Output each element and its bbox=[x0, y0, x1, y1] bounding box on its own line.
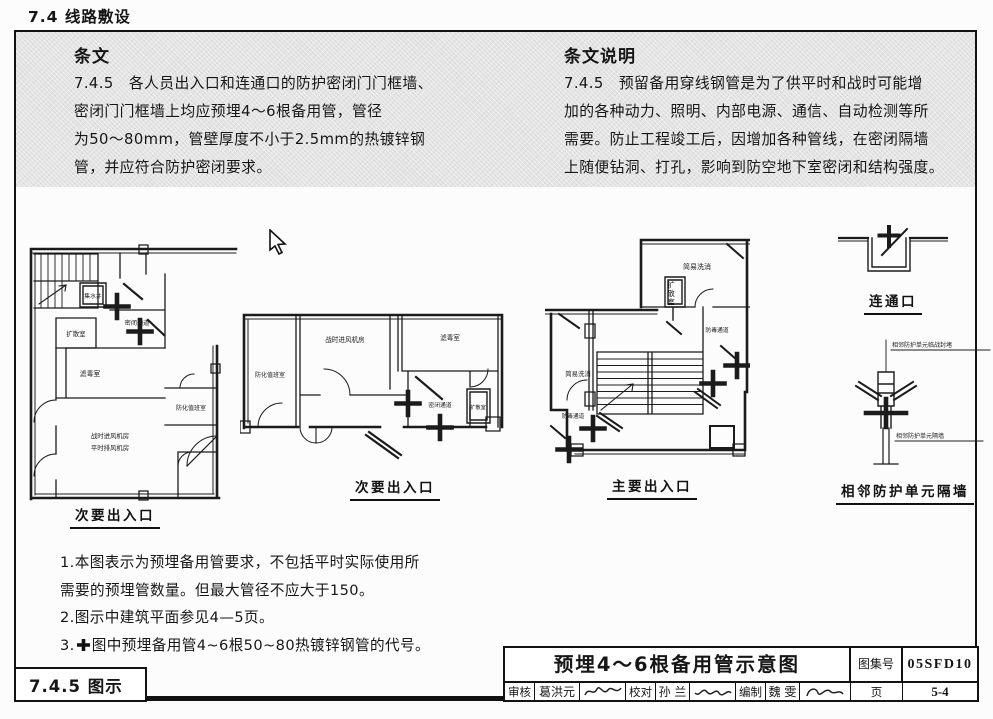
stair-arrow bbox=[601, 384, 633, 410]
reviewer-name: 葛洪元 bbox=[535, 683, 580, 700]
door-leaf bbox=[551, 346, 737, 438]
room-label-filter: 滤毒室 bbox=[440, 333, 460, 342]
explanation-line: 7.4.5 预留备用穿线钢管是为了供平时和战时可能增 bbox=[564, 70, 944, 98]
clause-line: 密闭门门框墙上均应预埋4～6根备用管，管径 bbox=[74, 98, 433, 126]
shaft-box bbox=[710, 426, 734, 448]
leader-line bbox=[886, 340, 990, 441]
compile-label: 编制 bbox=[736, 683, 766, 700]
note-line: 2.图示中建筑平面参见4—5页。 bbox=[60, 604, 430, 632]
note-line: 需要的预埋管数量。但最大管径不应大于150。 bbox=[60, 577, 430, 605]
spare-pipe-cross-icon bbox=[880, 226, 899, 246]
detail-bottom-caption: 相邻防护单元隔墙 bbox=[836, 480, 974, 505]
annotation-blocking: 相邻防护单元临战封堵 bbox=[892, 341, 952, 349]
room-label-diffusion: 扩散室 bbox=[66, 329, 86, 338]
signature-scribble bbox=[693, 684, 733, 699]
spare-pipe-cross-icon bbox=[106, 295, 152, 343]
plan3-caption: 主要出入口 bbox=[607, 475, 697, 500]
door-leaf bbox=[366, 377, 442, 458]
clause-line: 为50～80mm，管壁厚度不小于2.5mm的热镀锌钢 bbox=[74, 126, 433, 154]
door-leaf bbox=[882, 229, 907, 255]
detail-connecting-opening bbox=[838, 225, 948, 281]
room-label-fan1: 战时进风机房 bbox=[91, 431, 129, 440]
clause-line: 管，并应符合防护密闭要求。 bbox=[74, 154, 433, 182]
detail-partition-wall: 相邻防护单元临战封堵 相邻防护单元隔墙 bbox=[848, 336, 993, 476]
note-prefix: 3. bbox=[60, 637, 75, 654]
atlas-number: 05SFD10 bbox=[903, 648, 977, 681]
detail-top-caption: 连通口 bbox=[864, 290, 922, 315]
page-number: 5-4 bbox=[903, 683, 977, 700]
clause-body: 7.4.5 各人员出入口和连通口的防护密闭门门框墙、 密闭门门框墙上均应预埋4～… bbox=[74, 70, 433, 182]
wall-sleeve-box bbox=[240, 417, 500, 433]
figure-label: 7.4.5 图示 bbox=[29, 673, 123, 697]
atlas-label: 图集号 bbox=[851, 648, 903, 681]
compiler-signature bbox=[800, 683, 851, 700]
room-label-wash-left: 简易洗消 bbox=[565, 369, 591, 378]
signature-scribble bbox=[583, 684, 623, 699]
document-page: 7.4 线路敷设 条文 7.4.5 各人员出入口和连通口的防护密闭门门框墙、 密… bbox=[0, 0, 993, 719]
plan2-caption: 次要出入口 bbox=[350, 476, 440, 501]
notes: 1.本图表示为预埋备用管要求，不包括平时实际使用所 需要的预埋管数量。但最大管径… bbox=[60, 549, 430, 659]
mouse-cursor bbox=[269, 229, 291, 255]
compiler-name: 魏 雯 bbox=[766, 683, 800, 700]
explanation-heading: 条文说明 bbox=[564, 42, 636, 67]
stair-treads bbox=[597, 359, 703, 405]
room-label-wash-right: 简易洗消 bbox=[683, 262, 711, 271]
door-leaf bbox=[559, 244, 743, 334]
proofreader-signature bbox=[690, 683, 736, 700]
page-label: 页 bbox=[851, 683, 903, 700]
title-block-row1: 预埋4～6根备用管示意图 图集号 05SFD10 bbox=[505, 648, 977, 683]
review-label: 审核 bbox=[505, 683, 535, 700]
figure-label-box: 7.4.5 图示 bbox=[14, 667, 147, 702]
annotation-wall: 相邻防护单元隔墙 bbox=[896, 432, 944, 440]
plan-secondary-exit-2: 防化值班室 战时进风机房 滤毒室 密闭通道 扩散室 bbox=[240, 305, 512, 465]
room-label-diffusion-vertical: 扩散室 bbox=[667, 281, 675, 321]
plan1-caption: 次要出入口 bbox=[70, 504, 160, 529]
plan-secondary-exit-1: 集水井 扩散室 密闭通道 滤毒室 防化值班室 战时进风机房 平时排风机房 bbox=[28, 240, 238, 504]
sheet-title: 预埋4～6根备用管示意图 bbox=[505, 648, 851, 681]
room-label-sealed-passage: 密闭通道 bbox=[125, 319, 150, 327]
plan-main-exit: 简易洗消 防毒通道 简易洗消 防毒通道 bbox=[545, 232, 750, 472]
explanation-line: 加的各种动力、照明、内部电源、通信、自动检测等所 bbox=[564, 98, 944, 126]
title-block-row2: 审核 葛洪元 校对 孙 兰 编制 魏 雯 页 5-4 bbox=[505, 683, 977, 700]
spare-pipe-cross-icon bbox=[866, 399, 906, 427]
explanation-body: 7.4.5 预留备用穿线钢管是为了供平时和战时可能增 加的各种动力、照明、内部电… bbox=[564, 70, 944, 182]
note-line: 3.图中预埋备用管4~6根50~80热镀锌钢管的代号。 bbox=[60, 632, 430, 660]
room-label-diffusion: 扩散室 bbox=[470, 403, 486, 411]
explanation-line: 需要。防止工程竣工后，因增加各种管线，在密闭隔墙 bbox=[564, 126, 944, 154]
signature-scribble bbox=[804, 684, 846, 699]
note-line: 1.本图表示为预埋备用管要求，不包括平时实际使用所 bbox=[60, 549, 430, 577]
room-label-duty: 防化值班室 bbox=[176, 404, 206, 412]
room-label-fan: 战时进风机房 bbox=[325, 335, 365, 344]
proofreader-name: 孙 兰 bbox=[656, 683, 690, 700]
room-label-sealed-passage: 密闭通道 bbox=[428, 401, 451, 409]
section-header: 7.4 线路敷设 bbox=[28, 5, 131, 27]
clause-heading: 条文 bbox=[74, 42, 110, 67]
explanation-line: 上随便钻洞、打孔，影响到防空地下室密闭和结构强度。 bbox=[564, 154, 944, 182]
room-label-sump: 集水井 bbox=[84, 292, 102, 300]
clause-line: 7.4.5 各人员出入口和连通口的防护密闭门门框墙、 bbox=[74, 70, 433, 98]
title-block: 预埋4～6根备用管示意图 图集号 05SFD10 审核 葛洪元 校对 孙 兰 编… bbox=[503, 646, 979, 702]
room-label-gas-passage-left: 防毒通道 bbox=[562, 412, 585, 420]
room-label-duty: 防化值班室 bbox=[255, 371, 285, 379]
reviewer-signature bbox=[580, 683, 626, 700]
spare-pipe-symbol-icon bbox=[77, 639, 90, 651]
door-arc bbox=[258, 369, 488, 443]
room-label-gas-passage-right: 防毒通道 bbox=[705, 326, 728, 334]
proofread-label: 校对 bbox=[626, 683, 656, 700]
room-label-fan2: 平时排风机房 bbox=[91, 443, 129, 452]
room-label-filter: 滤毒室 bbox=[80, 369, 101, 378]
wall-sleeve-box bbox=[139, 245, 220, 500]
note-text: 图中预埋备用管4~6根50~80热镀锌钢管的代号。 bbox=[92, 637, 430, 654]
